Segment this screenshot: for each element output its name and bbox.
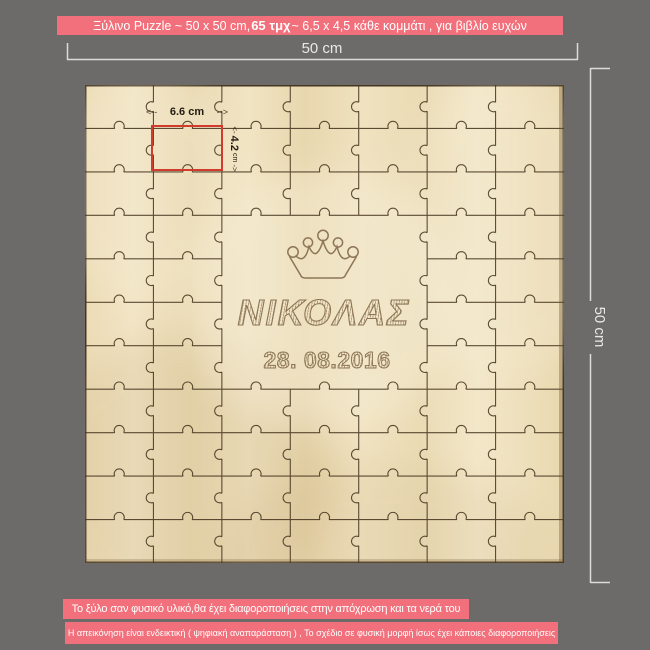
piece-height-unit: cm — [231, 153, 238, 162]
note-banner-1: Το ξύλο σαν φυσικό υλικό,θα έχει διαφορο… — [63, 599, 469, 619]
engraved-name: ΝΙΚΟΛΑΣ — [224, 291, 424, 335]
arrow-up-icon: <- — [230, 126, 239, 133]
note-banner-2: Η απεικόνηση είναι ενδεικτική ( ψηφιακή … — [65, 622, 558, 644]
width-dimension-label: 50 cm — [290, 40, 354, 57]
piece-width-value: 6.6 cm — [170, 106, 204, 118]
arrow-down-icon: -> — [230, 164, 239, 171]
product-image: Ξύλινο Puzzle ~ 50 x 50 cm, 65 τμχ ~ 6,5… — [0, 0, 650, 650]
engraved-date: 28. 08.2016 — [242, 347, 412, 373]
arrow-left-icon: <-- — [146, 107, 157, 117]
piece-height-label: <- 4.2 cm -> — [227, 126, 242, 172]
height-dimension-label: 50 cm — [592, 304, 608, 350]
piece-width-label: <-- 6.6 cm --> — [146, 104, 228, 120]
sample-piece-highlight — [151, 125, 223, 171]
piece-height-value: 4.2 — [229, 136, 241, 151]
arrow-right-icon: --> — [217, 107, 228, 117]
